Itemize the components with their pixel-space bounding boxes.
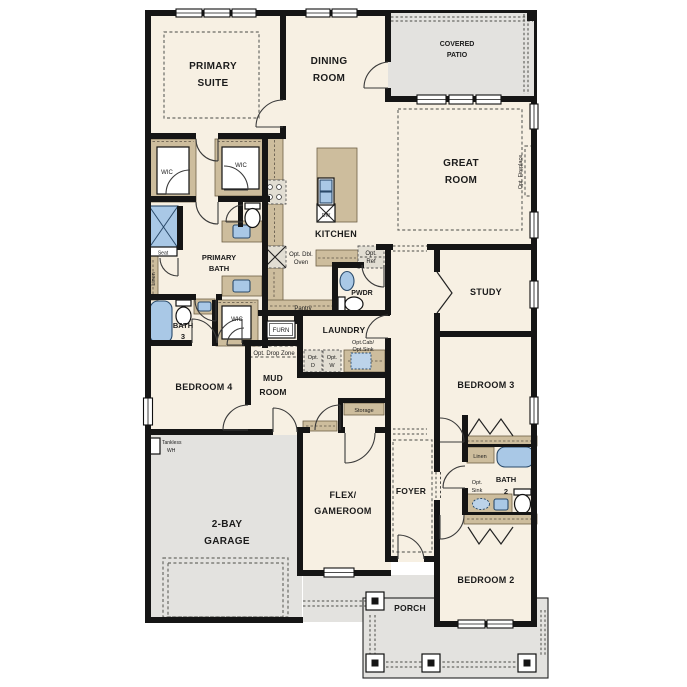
label-opt-d: Opt.: [308, 355, 319, 361]
label-mud-room: ROOM: [259, 387, 286, 397]
label-opt-cab-sink: Opt.Cab/: [352, 340, 374, 346]
label-opt-sink: Sink: [472, 488, 483, 494]
primary-sink-2: [233, 280, 250, 292]
label-foyer: FOYER: [396, 486, 426, 496]
label-dining-room: DINING: [311, 56, 348, 67]
bath2-sink: [494, 499, 508, 510]
label-seat: Seat: [158, 251, 169, 257]
label-bath3: 3: [181, 332, 185, 341]
label-flex-gameroom: FLEX/: [329, 490, 356, 500]
toilet-tank-bath3: [176, 300, 191, 306]
toilet-primary: [245, 209, 260, 228]
window: [204, 9, 230, 17]
label-wic-hall: WIC: [231, 317, 243, 323]
bath2-opt-sink: [473, 499, 490, 510]
label-linen-bath2: Linen: [473, 454, 486, 460]
label-bath3: BATH: [173, 321, 193, 330]
window: [530, 281, 538, 308]
label-primary-bath: BATH: [209, 264, 229, 273]
label-great-room: ROOM: [445, 175, 477, 186]
label-opt-d: D: [311, 363, 315, 369]
label-bath2: 2: [504, 487, 508, 496]
bath3-tub: [150, 301, 172, 343]
window: [306, 9, 330, 17]
label-primary-bath: PRIMARY: [202, 253, 236, 262]
label-storage: Storage: [354, 408, 373, 414]
window: [449, 95, 473, 104]
island-sink-basin: [320, 192, 332, 203]
floor-plan: PRIMARY SUITE DINING ROOM COVERED PATIO …: [0, 0, 687, 687]
label-dishwasher: DW: [322, 213, 331, 219]
room-right-stack: [434, 248, 536, 622]
label-mud-room: MUD: [263, 373, 283, 383]
label-furn: FURN: [273, 328, 290, 334]
label-kitchen: KITCHEN: [315, 229, 357, 239]
label-opt-w: W: [329, 363, 335, 369]
floor-plan-page: PRIMARY SUITE DINING ROOM COVERED PATIO …: [0, 0, 687, 687]
window: [530, 397, 538, 424]
label-bath2: BATH: [496, 475, 516, 484]
label-garage: GARAGE: [204, 536, 250, 547]
label-opt-sink: Opt.: [472, 480, 483, 486]
porch-post: [518, 654, 536, 672]
porch-post: [366, 654, 384, 672]
label-tankless-wh: Tankless: [162, 440, 182, 446]
label-opt-fireplace: Opt. Fireplace: [518, 155, 524, 190]
burner-icon: [277, 185, 282, 190]
label-dining-room: ROOM: [313, 73, 345, 84]
label-porch: PORCH: [394, 603, 426, 613]
window: [487, 620, 513, 628]
label-opt-cab-sink: Opt.Sink: [352, 347, 373, 353]
laundry-opt-sink: [351, 353, 371, 369]
porch-post: [366, 592, 384, 610]
label-flex-gameroom: GAMEROOM: [314, 506, 371, 516]
bath3-sink: [198, 302, 211, 311]
label-bedroom3: BEDROOM 3: [457, 380, 514, 390]
label-tankless-wh: WH: [167, 448, 176, 454]
porch-post: [422, 654, 440, 672]
label-wic-right: WIC: [235, 163, 247, 169]
window: [176, 9, 202, 17]
label-pantry: Pantry: [294, 306, 311, 312]
label-opt-drop-zone: Opt. Drop Zone: [253, 351, 295, 357]
island-sink-basin: [320, 180, 332, 191]
label-covered-patio: COVERED: [440, 41, 475, 48]
label-study: STUDY: [470, 287, 502, 297]
window: [476, 95, 501, 104]
label-opt-dbl-oven: Opt. Dbl.: [289, 252, 313, 258]
label-opt-w: Opt.: [327, 355, 338, 361]
label-great-room: GREAT: [443, 158, 479, 169]
label-opt-dbl-oven: Oven: [294, 260, 308, 266]
toilet-pwdr: [345, 297, 363, 311]
burner-icon: [277, 195, 282, 200]
burner-icon: [268, 185, 273, 190]
pwdr-sink: [340, 272, 354, 291]
window: [417, 95, 446, 104]
patio-post: [527, 12, 536, 21]
label-primary-suite: SUITE: [198, 78, 229, 89]
label-bedroom2: BEDROOM 2: [457, 575, 514, 585]
label-laundry: LAUNDRY: [323, 325, 366, 335]
window: [324, 568, 354, 577]
label-pwdr: PWDR: [351, 290, 372, 297]
window: [144, 398, 153, 425]
label-primary-suite: PRIMARY: [189, 61, 237, 72]
window: [332, 9, 357, 17]
pantry-shelf-left: [266, 268, 283, 302]
toilet-bath2: [515, 495, 531, 514]
window: [458, 620, 485, 628]
bath2-tub: [497, 447, 534, 467]
window: [232, 9, 256, 17]
toilet-tank-pwdr: [338, 297, 345, 311]
label-bedroom4: BEDROOM 4: [175, 382, 232, 392]
label-wic-left: WIC: [161, 170, 173, 176]
label-garage: 2-BAY: [212, 519, 243, 530]
label-opt-ref: Opt.: [365, 251, 377, 257]
label-opt-ref: Ref: [366, 259, 376, 265]
window: [530, 212, 538, 238]
label-linen-primary: Linen: [151, 272, 157, 285]
label-covered-patio: PATIO: [447, 52, 468, 59]
window: [530, 104, 538, 129]
